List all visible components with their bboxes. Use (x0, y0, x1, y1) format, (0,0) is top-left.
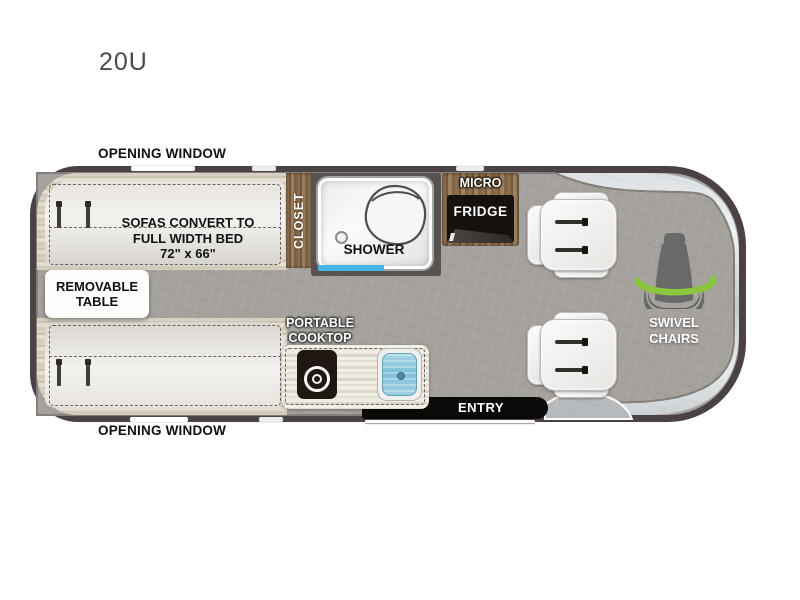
sofa-fold-line (49, 356, 281, 357)
seatbelt-icon (86, 362, 90, 386)
sofa-note-line2: FULL WIDTH BED (133, 231, 243, 246)
sofa-note-line3: 72" x 66" (160, 246, 216, 261)
armrest-bar (555, 248, 585, 252)
window-strip-top (131, 166, 195, 171)
window-strip-bottom (130, 417, 188, 422)
shower-label: SHOWER (318, 242, 430, 257)
model-number: 20U (99, 48, 148, 77)
sofa-note-line1: SOFAS CONVERT TO (122, 215, 255, 230)
shower-door-track (318, 265, 384, 271)
entry-label: ENTRY (458, 400, 504, 415)
swivel-chairs-label: SWIVEL CHAIRS (630, 315, 718, 346)
portable-cooktop (297, 350, 337, 399)
opening-window-label-bottom: OPENING WINDOW (98, 423, 226, 438)
fridge-label: FRIDGE (447, 204, 514, 219)
swivel-chair-front-passenger (527, 192, 619, 278)
floorplan-canvas: 20U OPENING WINDOW OPENING WINDOW (0, 0, 800, 600)
sink (377, 348, 422, 401)
portable-cooktop-label: PORTABLE COOKTOP (283, 316, 357, 346)
closet: CLOSET (286, 173, 312, 268)
van-body-outline: SOFAS CONVERT TO FULL WIDTH BED 72" x 66… (30, 166, 746, 422)
micro-fridge-cabinet: MICRO FRIDGE (442, 173, 519, 246)
bed-outline-dashed (49, 325, 281, 406)
cooktop-label-line2: COOKTOP (289, 331, 352, 345)
swivel-chair-driver (527, 312, 619, 398)
sink-basin (382, 353, 417, 396)
fridge: FRIDGE (447, 195, 514, 243)
galley-counter (282, 345, 429, 409)
closet-label: CLOSET (286, 173, 312, 268)
window-strip-top-galley (456, 166, 484, 171)
swivel-label-line1: SWIVEL (649, 315, 699, 330)
cooktop-label-line1: PORTABLE (286, 316, 354, 330)
removable-table: REMOVABLE TABLE (45, 270, 149, 318)
armrest-bar (555, 368, 585, 372)
burner-center-icon (312, 374, 322, 384)
swivel-seat-icon (634, 231, 724, 309)
fridge-glass-reflection (447, 226, 514, 243)
toilet-icon (360, 183, 430, 247)
seatbelt-icon (57, 204, 61, 228)
seatbelt-icon (86, 204, 90, 228)
seatbelt-icon (57, 362, 61, 386)
window-strip-top-small (252, 166, 276, 171)
chair-seat (540, 199, 617, 271)
window-strip-bottom-small (259, 417, 283, 422)
sofa-convert-note: SOFAS CONVERT TO FULL WIDTH BED 72" x 66… (92, 215, 284, 262)
shower-pan: SHOWER (316, 176, 434, 271)
sink-drain-icon (397, 372, 405, 380)
sofa-bottom (37, 318, 287, 415)
chair-seat (540, 319, 617, 391)
removable-table-label: REMOVABLE TABLE (45, 279, 149, 309)
swivel-label-line2: CHAIRS (649, 331, 699, 346)
opening-window-label-top: OPENING WINDOW (98, 146, 226, 161)
armrest-bar (555, 220, 585, 224)
entry-step-edge (365, 420, 535, 423)
armrest-bar (555, 340, 585, 344)
sofa-top: SOFAS CONVERT TO FULL WIDTH BED 72" x 66… (37, 173, 287, 270)
micro-label: MICRO (442, 176, 519, 190)
